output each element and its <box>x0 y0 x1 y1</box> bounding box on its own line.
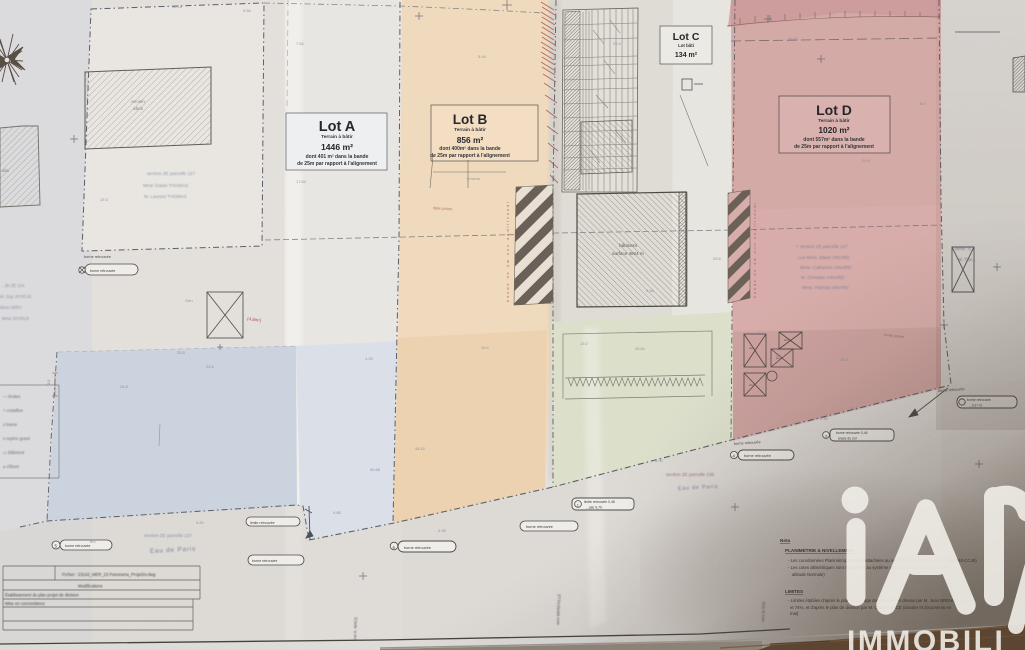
svg-text:IMMOBILI: IMMOBILI <box>847 625 1005 650</box>
